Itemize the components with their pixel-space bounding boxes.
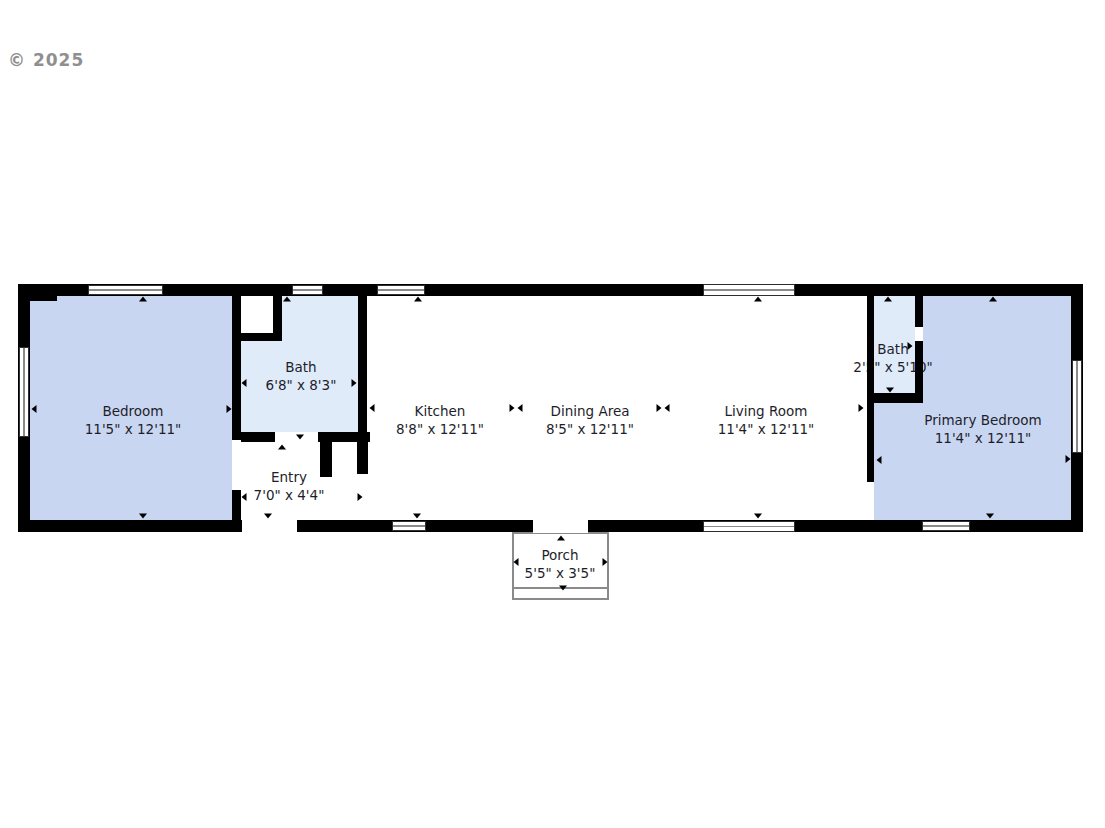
marker-arrow-icon	[518, 404, 523, 412]
room-label-dining-area: Dining Area 8'5" x 12'11"	[546, 402, 634, 438]
room-dimensions: 11'5" x 12'11"	[85, 420, 182, 438]
room-dimensions: 11'4" x 12'11"	[924, 429, 1042, 447]
marker-arrow-icon	[32, 405, 37, 413]
marker-arrow-icon	[283, 297, 291, 302]
room-dimensions: 8'8" x 12'11"	[396, 420, 484, 438]
marker-arrow-icon	[370, 404, 375, 412]
door-bedroom	[232, 440, 241, 490]
door-entry-exterior	[242, 519, 297, 533]
window-bedroom-top	[88, 285, 163, 295]
door-porch	[533, 519, 588, 533]
marker-arrow-icon	[139, 297, 147, 302]
room-label-porch: Porch 5'5" x 3'5"	[525, 546, 596, 582]
marker-arrow-icon	[754, 514, 762, 519]
marker-arrow-icon	[278, 445, 286, 450]
room-name: Bath	[266, 358, 337, 376]
room-label-bath-1: Bath 6'8" x 8'3"	[266, 358, 337, 394]
wall-utility-left-leg	[320, 442, 332, 477]
room-label-bedroom: Bedroom 11'5" x 12'11"	[85, 402, 182, 438]
room-name: Porch	[525, 546, 596, 564]
marker-arrow-icon	[986, 514, 994, 519]
wall-utility-right-leg	[357, 442, 368, 474]
marker-arrow-icon	[559, 586, 567, 591]
marker-arrow-icon	[665, 404, 670, 412]
wall-closet-bottom	[241, 333, 282, 341]
marker-arrow-icon	[1066, 455, 1071, 463]
room-name: Dining Area	[546, 402, 634, 420]
door-primary-bedroom	[867, 482, 874, 520]
room-name: Entry	[254, 468, 325, 486]
marker-arrow-icon	[296, 435, 304, 440]
wall-living-primary	[867, 296, 874, 482]
marker-arrow-icon	[886, 388, 894, 393]
window-kitchen-top	[377, 285, 425, 295]
window-living-bottom	[703, 521, 795, 532]
room-name: Kitchen	[396, 402, 484, 420]
room-name: Living Room	[718, 402, 815, 420]
marker-arrow-icon	[264, 514, 272, 519]
room-dimensions: 5'5" x 3'5"	[525, 564, 596, 582]
room-label-primary-bedroom: Primary Bedroom 11'4" x 12'11"	[924, 411, 1042, 447]
window-living-top	[703, 284, 795, 296]
marker-arrow-icon	[414, 297, 422, 302]
wall-outer-top	[18, 284, 1083, 296]
wall-bath-1-right	[358, 296, 367, 442]
window-kitchen-bottom	[392, 521, 426, 531]
room-dimensions: 8'5" x 12'11"	[546, 420, 634, 438]
window-bath-1-top	[292, 285, 323, 295]
marker-arrow-icon	[413, 514, 421, 519]
window-primary-right	[1072, 360, 1082, 453]
marker-arrow-icon	[139, 514, 147, 519]
marker-arrow-icon	[908, 342, 913, 350]
marker-arrow-icon	[657, 404, 662, 412]
wall-bath-2-right	[915, 296, 923, 403]
marker-arrow-icon	[989, 297, 997, 302]
marker-arrow-icon	[242, 379, 247, 387]
door-bath-2	[915, 327, 923, 341]
marker-arrow-icon	[884, 297, 892, 302]
marker-arrow-icon	[242, 493, 247, 501]
marker-arrow-icon	[510, 404, 515, 412]
room-label-living-room: Living Room 11'4" x 12'11"	[718, 402, 815, 438]
room-name: Bedroom	[85, 402, 182, 420]
room-dimensions: 7'0" x 4'4"	[254, 486, 325, 504]
marker-arrow-icon	[859, 404, 864, 412]
marker-arrow-icon	[514, 558, 519, 566]
wall-bedroom-top-step	[30, 296, 57, 301]
marker-arrow-icon	[227, 405, 232, 413]
wall-bath-2-bottom	[867, 393, 923, 403]
window-primary-bottom	[922, 521, 970, 531]
marker-arrow-icon	[603, 558, 608, 566]
floor-plan-image: © 2025	[0, 0, 1105, 828]
marker-arrow-icon	[557, 536, 565, 541]
room-label-kitchen: Kitchen 8'8" x 12'11"	[396, 402, 484, 438]
room-dimensions: 11'4" x 12'11"	[718, 420, 815, 438]
room-label-entry: Entry 7'0" x 4'4"	[254, 468, 325, 504]
floor-plan: Bedroom 11'5" x 12'11" Bath 6'8" x 8'3" …	[0, 0, 1105, 828]
marker-arrow-icon	[869, 342, 874, 350]
marker-arrow-icon	[877, 456, 882, 464]
marker-arrow-icon	[352, 379, 357, 387]
marker-arrow-icon	[754, 297, 762, 302]
primary-bedroom-fill-upper	[923, 296, 1071, 403]
window-bedroom-left	[19, 347, 29, 437]
room-dimensions: 6'8" x 8'3"	[266, 376, 337, 394]
marker-arrow-icon	[358, 493, 363, 501]
room-name: Primary Bedroom	[924, 411, 1042, 429]
